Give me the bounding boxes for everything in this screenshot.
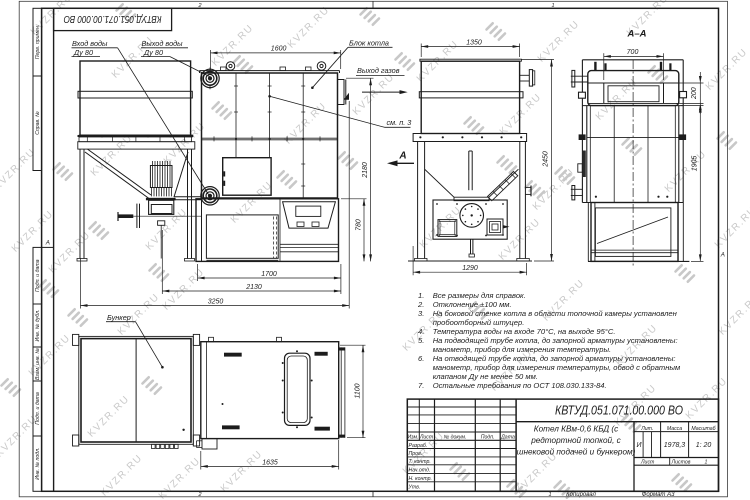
svg-text:Выход воды: Выход воды	[142, 39, 184, 48]
svg-text:1: 20: 1: 20	[696, 442, 712, 449]
svg-text:1290: 1290	[462, 265, 478, 272]
svg-text:манометр, прибор для измерения: манометр, прибор для измерения температу…	[433, 345, 611, 354]
svg-text:Подп. и дата: Подп. и дата	[35, 392, 41, 425]
svg-text:2180: 2180	[362, 162, 369, 179]
svg-text:2: 2	[197, 3, 201, 9]
svg-text:клапаном Ду не менее 50 мм.: клапаном Ду не менее 50 мм.	[433, 372, 538, 381]
svg-text:А: А	[720, 252, 725, 259]
svg-text:1700: 1700	[261, 271, 277, 278]
svg-text:780: 780	[356, 219, 363, 231]
svg-text:Лист: Лист	[419, 434, 434, 440]
svg-text:200: 200	[691, 87, 698, 100]
svg-text:Лит.: Лит.	[640, 426, 653, 432]
svg-text:1: 1	[705, 460, 708, 466]
svg-text:Масса: Масса	[667, 426, 682, 432]
svg-text:1600: 1600	[271, 46, 287, 53]
svg-text:3250: 3250	[208, 299, 224, 306]
svg-text:Формат А3: Формат А3	[642, 492, 675, 498]
svg-text:Котел КВм-0,6 КБД (с: Котел КВм-0,6 КБД (с	[534, 425, 619, 434]
svg-text:7.: 7.	[418, 381, 424, 390]
svg-text:На боковой стенке котла в обла: На боковой стенке котла в области топочн…	[433, 309, 678, 318]
svg-text:Инв. № подл.: Инв. № подл.	[35, 447, 41, 479]
svg-text:Ду 80: Ду 80	[73, 48, 93, 57]
svg-text:Масштаб: Масштаб	[691, 426, 716, 432]
svg-text:1.: 1.	[418, 291, 424, 300]
svg-text:Пров.: Пров.	[409, 451, 423, 457]
svg-text:2: 2	[197, 492, 201, 498]
svg-text:Изм.: Изм.	[407, 434, 418, 440]
svg-text:редтортной топкой, с: редтортной топкой, с	[530, 436, 621, 445]
svg-text:Перв. примен.: Перв. примен.	[35, 25, 41, 59]
svg-text:1905: 1905	[692, 156, 699, 172]
svg-text:КВТУД.051.071.00.000 ВО: КВТУД.051.071.00.000 ВО	[555, 404, 683, 418]
svg-text:Т. контр.: Т. контр.	[409, 459, 431, 465]
svg-text:Подп.: Подп.	[481, 434, 495, 440]
svg-text:Вход воды: Вход воды	[72, 39, 108, 48]
svg-text:Справ. №: Справ. №	[35, 111, 41, 135]
svg-text:пробоотборный штуцер.: пробоотборный штуцер.	[433, 318, 525, 327]
svg-text:2450: 2450	[543, 151, 550, 168]
svg-text:А: А	[398, 151, 406, 162]
svg-text:На отводящей трубе котла, до з: На отводящей трубе котла, до запорной ар…	[433, 354, 676, 363]
svg-text:Температура воды на входе 70°С: Температура воды на входе 70°С, на выход…	[433, 327, 616, 336]
svg-text:1: 1	[551, 3, 554, 9]
svg-text:Все размеры для справок.: Все размеры для справок.	[433, 291, 526, 300]
svg-text:1: 1	[548, 492, 551, 498]
svg-text:Остальные требования по ОСТ 10: Остальные требования по ОСТ 108.030.133-…	[433, 381, 607, 390]
svg-text:1100: 1100	[354, 383, 361, 398]
svg-text:Ду 80: Ду 80	[143, 48, 163, 57]
svg-text:4.: 4.	[418, 327, 424, 336]
svg-text:Копировал: Копировал	[566, 492, 596, 498]
svg-text:КВТУД.051.071.00.000 ВО: КВТУД.051.071.00.000 ВО	[64, 13, 162, 24]
svg-text:Н. контр.: Н. контр.	[409, 476, 432, 482]
svg-text:А: А	[45, 240, 50, 247]
svg-text:Блок котла: Блок котла	[349, 38, 389, 47]
svg-text:1635: 1635	[262, 459, 278, 466]
svg-text:Разраб.: Разраб.	[409, 443, 428, 449]
svg-text:Утв.: Утв.	[409, 485, 421, 491]
svg-text:6.: 6.	[418, 354, 424, 363]
svg-text:5.: 5.	[418, 336, 424, 345]
svg-text:Лист: Лист	[640, 460, 655, 466]
svg-text:см. п. 3: см. п. 3	[387, 118, 412, 127]
svg-text:Отклонение ±100 мм.: Отклонение ±100 мм.	[433, 300, 512, 309]
svg-text:шнековой подачей и бункером): шнековой подачей и бункером)	[517, 448, 636, 457]
svg-text:Нач.отд.: Нач.отд.	[409, 468, 431, 474]
svg-text:А–А: А–А	[626, 29, 646, 40]
svg-text:Листов: Листов	[671, 460, 691, 466]
svg-text:Инв. № дубл.: Инв. № дубл.	[35, 310, 41, 342]
svg-text:Взам. инв. №: Взам. инв. №	[35, 348, 41, 380]
svg-text:манометр, прибор для измерения: манометр, прибор для измерения температу…	[433, 363, 681, 372]
svg-text:1978,3: 1978,3	[664, 442, 686, 449]
svg-text:Дата: Дата	[500, 434, 515, 440]
svg-text:2130: 2130	[245, 284, 262, 291]
svg-text:№ докум.: № докум.	[444, 434, 467, 440]
svg-text:3.: 3.	[418, 309, 424, 318]
svg-text:Подп. и дата: Подп. и дата	[35, 259, 41, 292]
svg-text:Выход газов: Выход газов	[357, 66, 400, 75]
svg-text:Бункер: Бункер	[107, 313, 131, 322]
svg-text:На подводящей трубе котла, до: На подводящей трубе котла, до запорной а…	[433, 336, 678, 345]
svg-text:700: 700	[627, 49, 639, 56]
svg-text:2.: 2.	[417, 300, 424, 309]
svg-text:1350: 1350	[466, 40, 482, 47]
